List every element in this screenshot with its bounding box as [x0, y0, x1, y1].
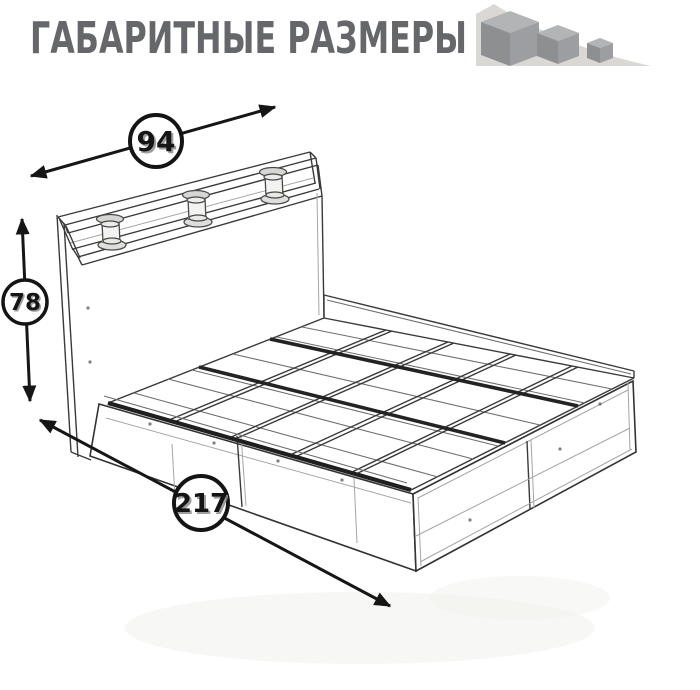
scan-shadow — [125, 576, 610, 664]
dimension-height: 78 78 — [3, 219, 47, 401]
shelf-post — [183, 191, 213, 228]
dimension-label-length: 217 — [174, 489, 228, 519]
drawer-front-panel — [90, 404, 416, 571]
dimension-width: 94 94 — [31, 107, 275, 176]
shelf-post — [97, 215, 127, 251]
dimension-diagram-page: 94 94 78 78 217 217 ГАБАРИТНЫЕ РАЗМЕРЫ — [0, 0, 700, 690]
dimension-label-height: 78 — [9, 290, 41, 316]
cubes-descending-icon — [476, 4, 651, 66]
dimension-diagram: 94 94 78 78 217 217 ГАБАРИТНЫЕ РАЗМЕРЫ — [0, 0, 700, 690]
dimension-label-width: 94 — [137, 125, 176, 158]
page-title: ГАБАРИТНЫЕ РАЗМЕРЫ — [30, 13, 467, 64]
foot-end-panel — [413, 381, 636, 571]
